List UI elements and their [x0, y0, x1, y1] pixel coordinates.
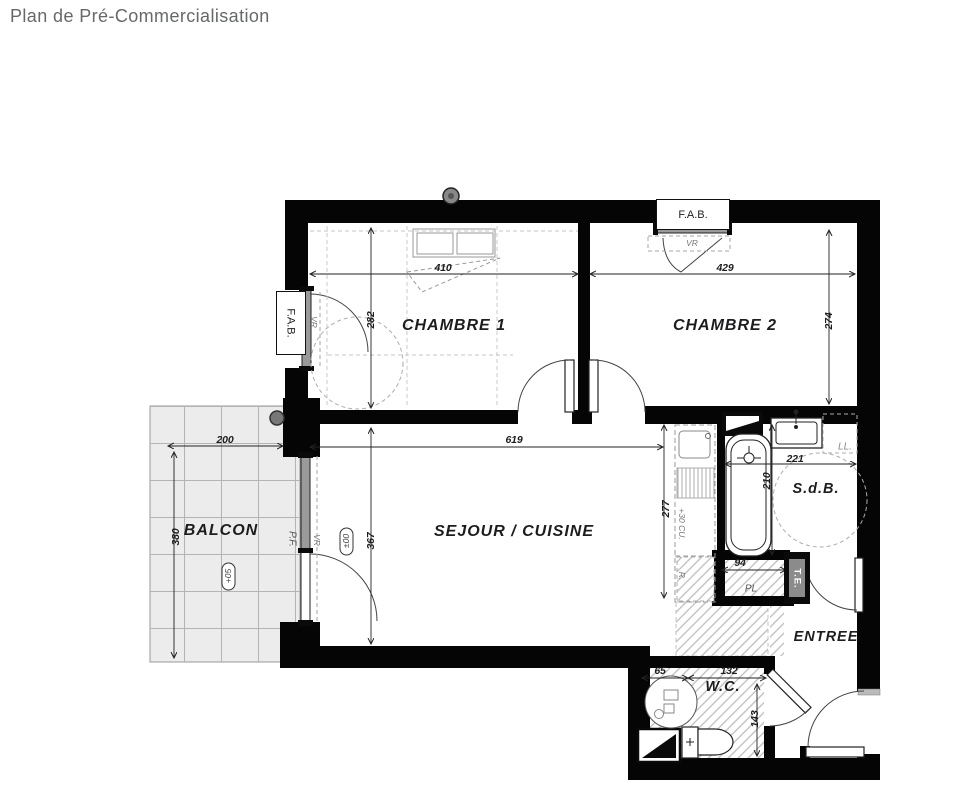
door-swing-entrance: [808, 691, 864, 747]
wall-right: [857, 200, 880, 692]
wall-hall-a: [308, 410, 518, 424]
electrical-panel-label: T.E.: [792, 568, 803, 588]
washbasin-drain: [794, 425, 798, 429]
wall-wc-right-bottom: [764, 726, 775, 760]
room-label-living-kitchen: SEJOUR / CUISINE: [434, 523, 594, 541]
dim-277: 277: [660, 501, 672, 518]
dim-380: 380: [170, 529, 182, 546]
floorplan-page: Plan de Pré-Commercialisation: [0, 0, 957, 800]
fab-box-top-label: F.A.B.: [678, 209, 707, 221]
dim-132: 132: [721, 665, 738, 677]
wall-left-b: [285, 368, 308, 400]
turning-circle-bedroom1: [311, 317, 403, 409]
hall-tiled-floor: [676, 602, 768, 656]
entrance-threshold: [858, 689, 880, 695]
room-label-entry: ENTREE: [794, 629, 859, 645]
dim-65: 65: [654, 665, 665, 677]
french-door-cap-b: [298, 620, 313, 626]
dim-143: 143: [749, 711, 761, 728]
bathtub-faucet: [744, 453, 754, 463]
door-swing-wc: [770, 710, 808, 726]
electrical-panel-inner: T.E.: [789, 559, 805, 597]
dim-619: 619: [506, 434, 523, 446]
french-door-label: P.F.: [287, 531, 298, 547]
wall-sejour-bottom: [296, 646, 650, 668]
door-leaf-wc: [767, 669, 811, 713]
level-label-sejour: ±00: [341, 534, 351, 548]
wall-left-a: [285, 223, 308, 290]
washing-machine-label: LL.: [838, 442, 852, 453]
dim-200: 200: [217, 434, 234, 446]
french-door-leaf: [301, 552, 310, 622]
dim-221: 221: [787, 453, 804, 465]
wall-balcony-post-top: [283, 398, 320, 457]
french-door-fixed-pane: [301, 456, 310, 551]
wall-balcony-post-bottom: [280, 622, 320, 668]
french-door-cap-t: [298, 452, 313, 458]
fridge-label: R.: [677, 572, 687, 581]
room-label-wc: W.C.: [705, 679, 740, 695]
bed-blanket-fold: [407, 258, 500, 292]
kitchen-counter-label: +30 CU.: [677, 508, 687, 539]
door-swing-bedroom1: [518, 360, 570, 412]
window-top-casement-arc: [663, 238, 681, 272]
door-swing-bedroom2: [593, 360, 645, 412]
french-door-cap-m: [298, 548, 313, 553]
dim-367: 367: [365, 533, 377, 550]
door-leaf-bathroom: [855, 558, 863, 612]
bed-pillow-1: [417, 233, 453, 254]
shutter-label-left: VR: [309, 316, 319, 328]
bed-pillow-2: [457, 233, 493, 254]
door-leaf-entrance: [806, 747, 864, 757]
room-label-bathroom: S.d.B.: [792, 481, 839, 497]
room-label-bedroom1: CHAMBRE 1: [402, 317, 506, 335]
wall-between-bedrooms: [578, 223, 590, 412]
floorplan-drawing: [0, 0, 957, 800]
water-heater: [645, 676, 697, 728]
fab-box-left-label: F.A.B.: [285, 308, 297, 337]
dim-94: 94: [734, 557, 745, 569]
shutter-label-top: VR: [686, 238, 698, 248]
dim-274: 274: [823, 313, 835, 330]
room-label-balcony: BALCON: [184, 522, 258, 540]
dim-210: 210: [761, 473, 773, 490]
dim-282: 282: [365, 312, 377, 329]
toilet-bowl: [698, 729, 733, 755]
washbasin-tap-dot: [794, 410, 799, 415]
shutter-label-pf: VR: [312, 534, 322, 546]
french-door-swing: [310, 554, 377, 621]
electrical-panel: T.E.: [784, 552, 810, 604]
wall-top-left: [285, 200, 656, 223]
room-label-bedroom2: CHAMBRE 2: [673, 317, 777, 335]
downpipe-center: [448, 193, 454, 199]
door-swing-bathroom: [805, 558, 857, 610]
fab-box-left: F.A.B.: [276, 291, 306, 355]
closet-label: PL: [745, 584, 757, 595]
level-label-balcon: +05: [223, 569, 233, 583]
kitchen-drainboard: [677, 468, 714, 498]
balcony-drain: [270, 411, 284, 425]
door-leaf-bedroom2: [589, 360, 598, 412]
turning-circle-bathroom: [773, 453, 867, 547]
dim-429: 429: [717, 262, 734, 274]
dim-410: 410: [435, 262, 452, 274]
fab-box-top: F.A.B.: [656, 199, 730, 230]
door-leaf-bedroom1: [565, 360, 574, 412]
